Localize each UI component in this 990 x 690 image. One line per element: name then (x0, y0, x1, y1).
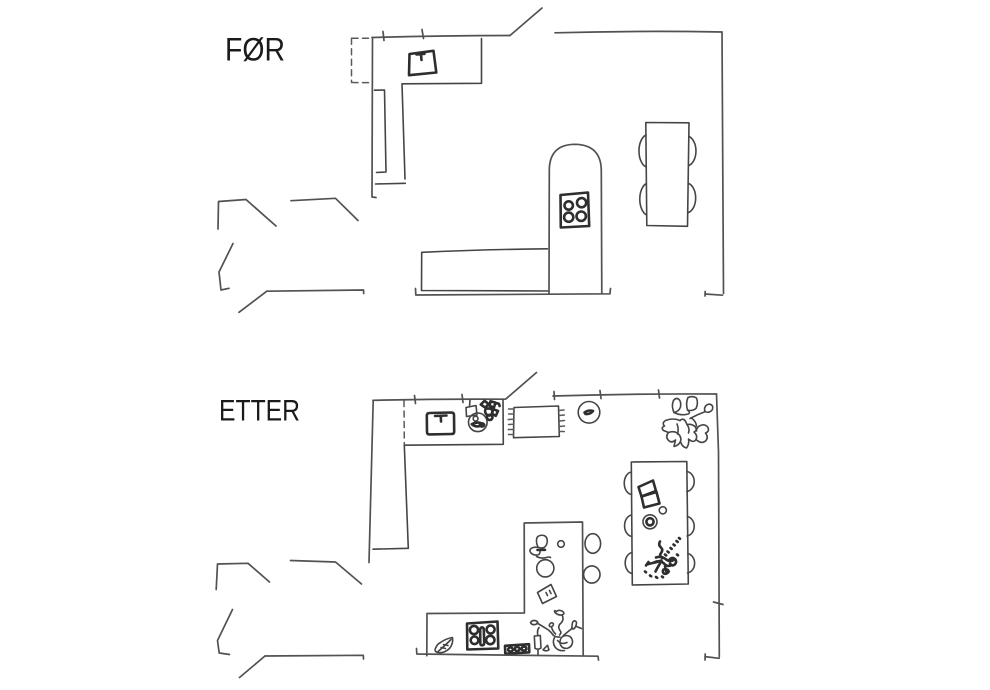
svg-text:ETTER: ETTER (219, 395, 300, 428)
svg-text:FØR: FØR (225, 32, 285, 68)
